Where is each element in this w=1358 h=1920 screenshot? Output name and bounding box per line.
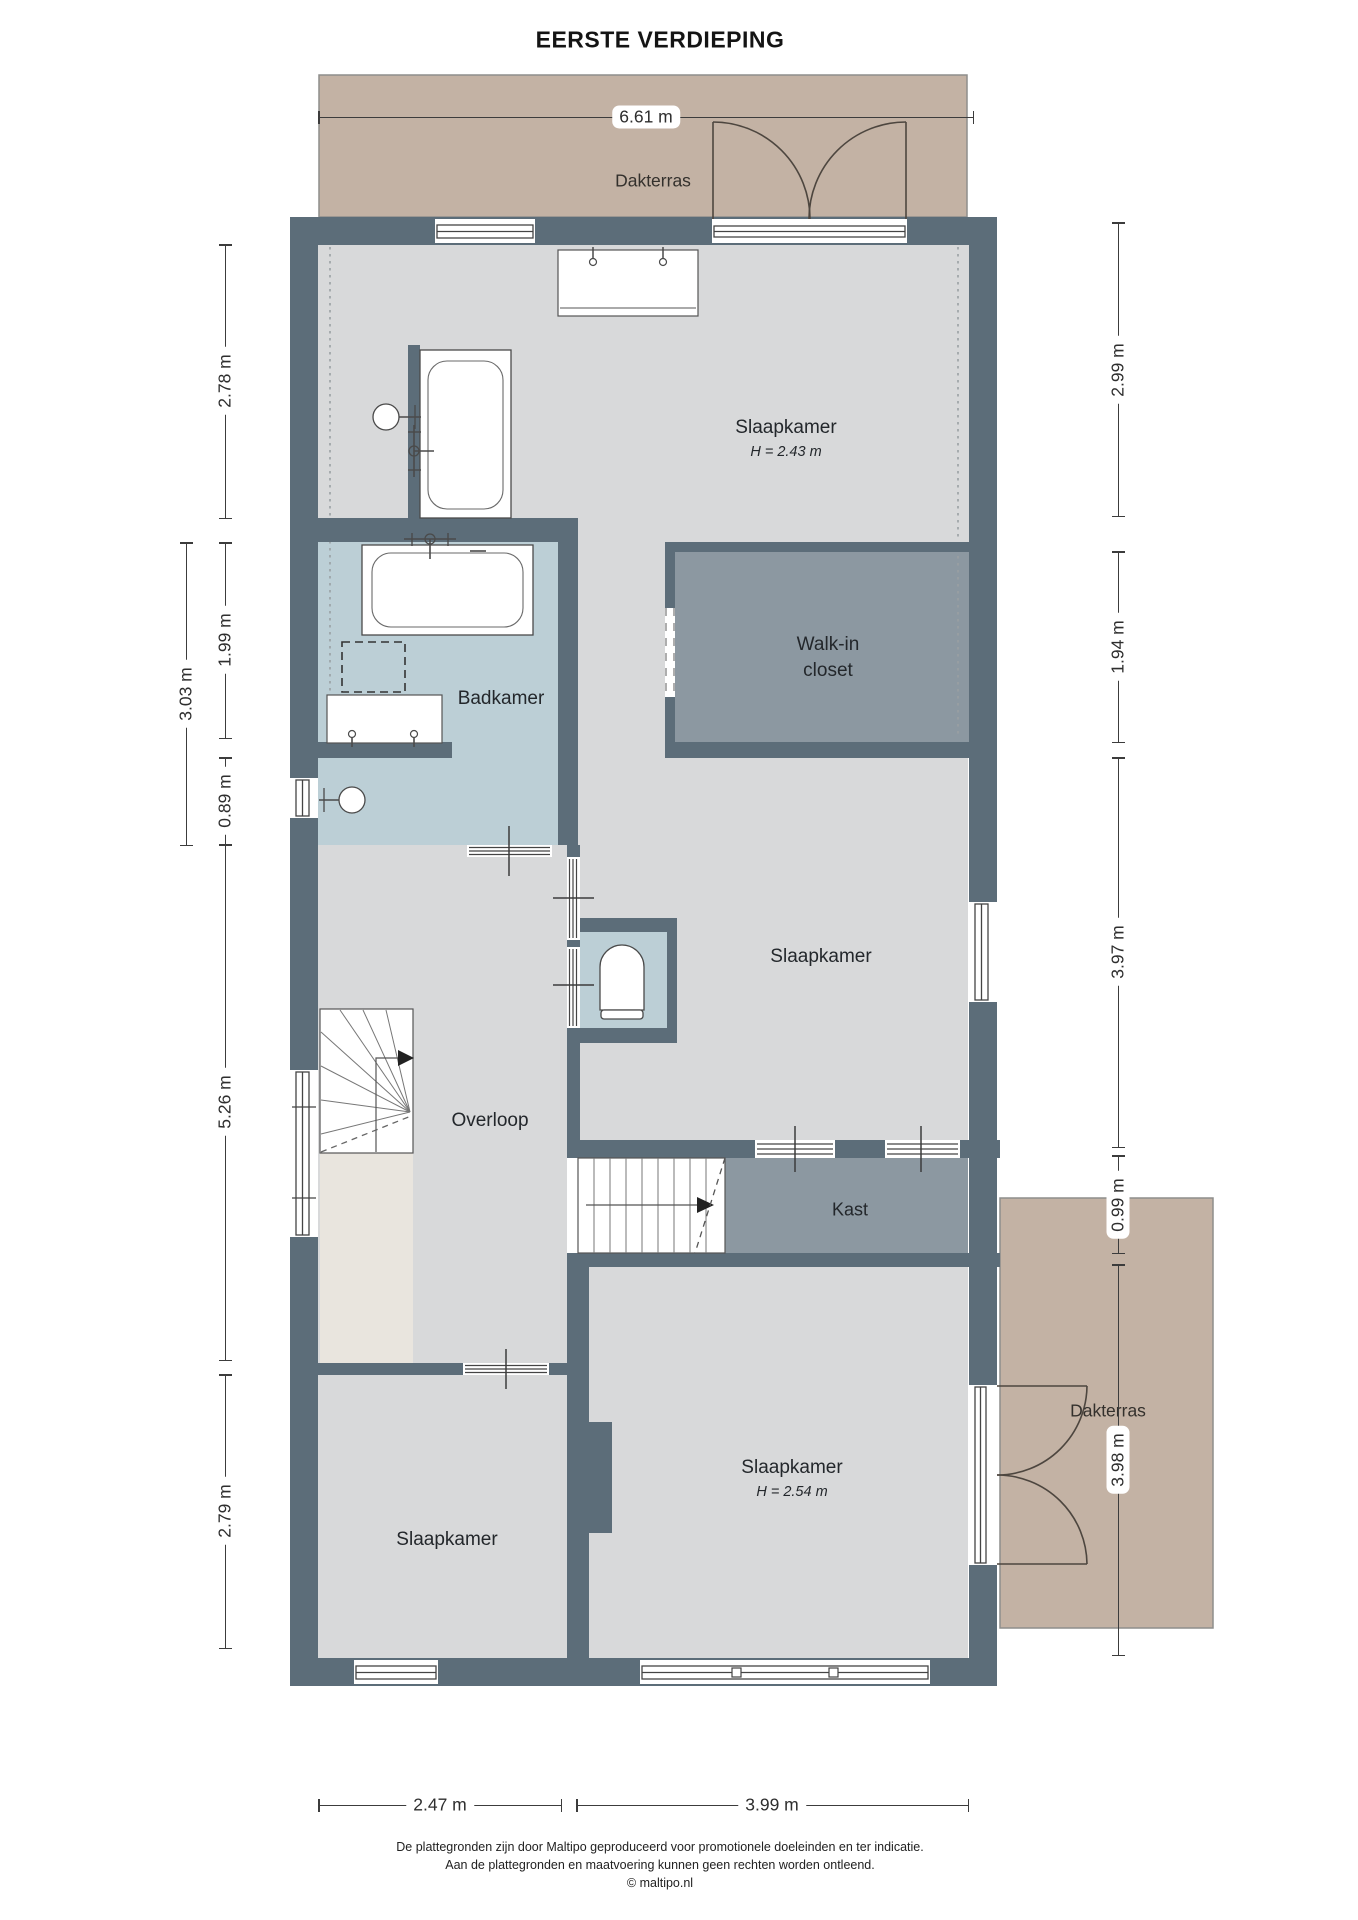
room-label-slaapkamer-bottom-right: Slaapkamer bbox=[741, 1457, 842, 1479]
dim-label-right-194: 1.94 m bbox=[1107, 613, 1130, 681]
room-label-walkin-1: Walk-in bbox=[797, 634, 860, 656]
dim-label-left-199: 1.99 m bbox=[214, 606, 237, 674]
dim-label-right-398: 3.98 m bbox=[1107, 1426, 1130, 1494]
dim-label-top: 6.61 m bbox=[612, 106, 680, 129]
dim-label-right-397: 3.97 m bbox=[1107, 918, 1130, 986]
toilet-icon bbox=[600, 945, 644, 1019]
footer-line-3: © maltipo.nl bbox=[627, 1876, 693, 1890]
dim-label-bottom-247: 2.47 m bbox=[406, 1794, 474, 1817]
stairs-straight bbox=[578, 1158, 725, 1253]
window-left-bathroom bbox=[290, 778, 318, 818]
radiator-icon bbox=[558, 247, 698, 316]
page-title: EERSTE VERDIEPING bbox=[536, 27, 785, 54]
room-height-slaapkamer-bottom-right: H = 2.54 m bbox=[756, 1484, 827, 1500]
dim-label-left-303: 3.03 m bbox=[175, 660, 198, 728]
bathtub-bathroom-icon bbox=[362, 533, 533, 635]
window-top bbox=[435, 219, 535, 243]
dim-label-left-526: 5.26 m bbox=[214, 1068, 237, 1136]
stairs-winder bbox=[320, 1009, 414, 1153]
dim-label-right-299: 2.99 m bbox=[1107, 336, 1130, 404]
dim-label-bottom-399: 3.99 m bbox=[738, 1794, 806, 1817]
window-bottom-right bbox=[640, 1660, 930, 1684]
room-label-walkin-2: closet bbox=[803, 660, 853, 682]
room-label-badkamer: Badkamer bbox=[458, 688, 545, 710]
dim-label-left-278: 2.78 m bbox=[214, 347, 237, 415]
footer-line-2: Aan de plattegronden en maatvoering kunn… bbox=[445, 1858, 875, 1872]
window-bottom-left bbox=[354, 1660, 438, 1684]
room-label-dakterras-top: Dakterras bbox=[615, 171, 691, 192]
sliding-door-walkin-closet bbox=[665, 608, 675, 697]
window-left-stairwell bbox=[290, 1070, 318, 1237]
footer-line-1: De plattegronden zijn door Maltipo gepro… bbox=[396, 1840, 923, 1854]
dim-label-left-279: 2.79 m bbox=[214, 1477, 237, 1545]
bathtub-top-icon bbox=[408, 350, 511, 518]
room-label-slaapkamer-mid: Slaapkamer bbox=[770, 946, 871, 968]
vanity-icon bbox=[327, 695, 442, 747]
room-height-slaapkamer-top: H = 2.43 m bbox=[750, 444, 821, 460]
roof-terrace-top bbox=[319, 75, 967, 217]
dim-label-left-089: 0.89 m bbox=[214, 767, 237, 835]
window-right-bedroom bbox=[969, 902, 997, 1002]
floorplan-drawing bbox=[0, 0, 1358, 1920]
room-label-slaapkamer-bottom-left: Slaapkamer bbox=[396, 1529, 497, 1551]
room-label-dakterras-bottom: Dakterras bbox=[1070, 1401, 1146, 1422]
room-label-overloop: Overloop bbox=[451, 1110, 528, 1132]
dim-label-right-099: 0.99 m bbox=[1107, 1171, 1130, 1239]
room-label-slaapkamer-top: Slaapkamer bbox=[735, 417, 836, 439]
floorplan-page: EERSTE VERDIEPING Dakterras Slaapkamer H… bbox=[0, 0, 1358, 1920]
room-label-kast: Kast bbox=[832, 1200, 868, 1221]
